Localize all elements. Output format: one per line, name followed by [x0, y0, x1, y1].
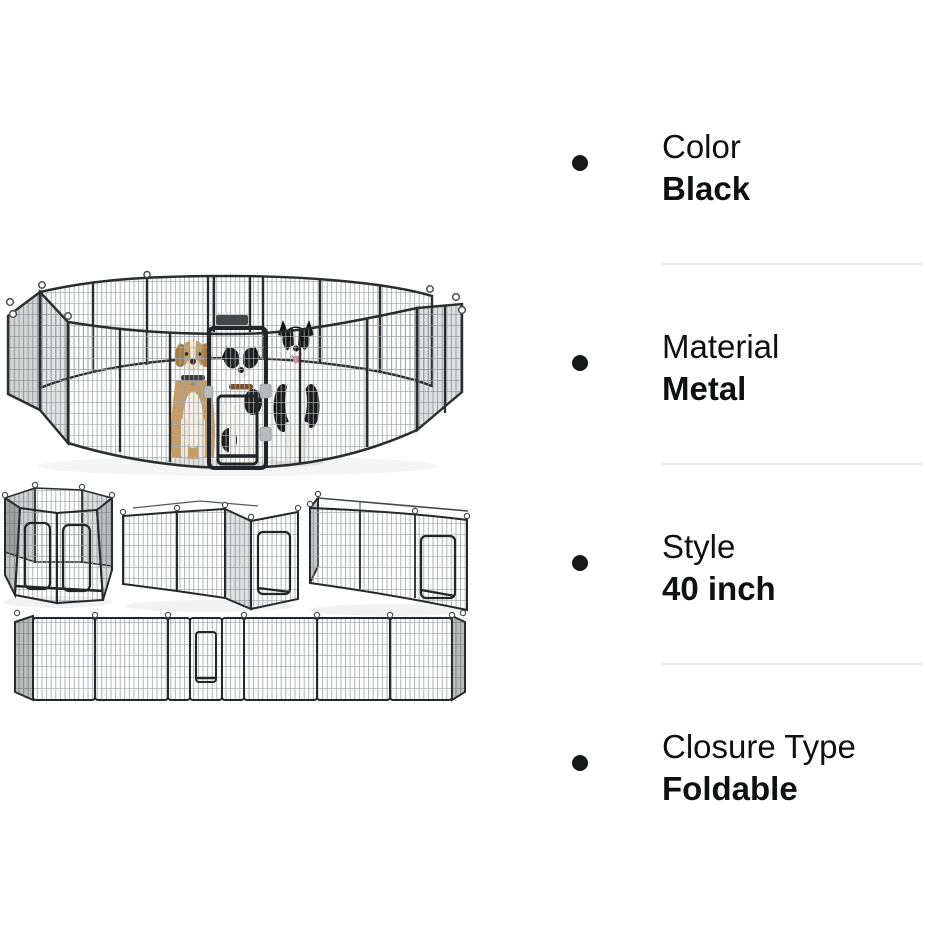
attribute-label: Material [662, 326, 924, 368]
flat-panels [14, 610, 465, 700]
product-attributes: Color Black Material Metal Style 40 inch… [662, 126, 924, 926]
attribute-row-closure-type: Closure Type Foldable [662, 726, 924, 926]
attribute-value: Foldable [662, 768, 924, 810]
playpen-illustration [0, 270, 470, 710]
bullet-icon [572, 155, 588, 171]
attribute-value: 40 inch [662, 568, 924, 610]
hexagon-pen [2, 482, 114, 608]
attribute-row-color: Color Black [662, 126, 924, 326]
attribute-row-material: Material Metal [662, 326, 924, 526]
divider [662, 663, 922, 665]
divider [662, 463, 922, 465]
attribute-label: Style [662, 526, 924, 568]
product-image[interactable] [0, 270, 470, 710]
l-shape-pen [120, 501, 300, 612]
divider [662, 263, 922, 265]
attribute-value: Metal [662, 368, 924, 410]
attribute-value: Black [662, 168, 924, 210]
bullet-icon [572, 555, 588, 571]
main-pen [7, 272, 466, 477]
bullet-icon [572, 355, 588, 371]
bullet-icon [572, 755, 588, 771]
attribute-label: Color [662, 126, 924, 168]
rectangle-pen [307, 491, 470, 616]
attribute-label: Closure Type [662, 726, 924, 768]
attribute-row-style: Style 40 inch [662, 526, 924, 726]
